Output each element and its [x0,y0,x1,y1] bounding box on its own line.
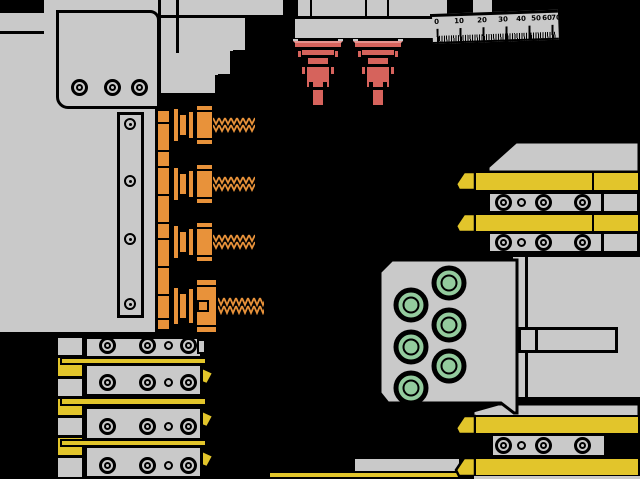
bolt-head-line [197,285,216,287]
collet-ear [394,50,399,58]
coolant-manifold [378,258,519,418]
dowel-hole [164,378,173,387]
cap-screw [180,457,197,474]
rail-screw [124,298,136,310]
cap-screw [574,437,591,454]
cutting-insert [454,170,476,192]
bolt-head-line [197,325,216,327]
collet-side-tab [330,66,335,75]
screw-socket [76,84,83,91]
cap-screw [104,79,121,96]
tool-bar [474,457,640,477]
rail-divider [157,222,170,224]
shim-sliver [60,397,207,406]
ruler-label: 10 [454,17,464,25]
band-seam [387,0,389,16]
collet [292,38,344,108]
ruler-label: 20 [477,16,487,24]
cap-screw [71,79,88,96]
bolt-thread-icon [213,234,255,250]
collet-shaft [311,88,325,107]
dowel-hole [517,441,526,450]
bar-seam [592,213,594,233]
rail-screw [124,175,136,187]
rail-screw [124,118,136,130]
cutting-insert [200,409,216,429]
scale-ruler: 0 10 20 30 40 50 60 70 [432,10,559,44]
cap-screw [180,337,197,354]
rail-divider [157,194,170,196]
bolt-head-line [197,169,212,171]
cap-screw [180,418,197,435]
ruler-label: 70 [551,14,561,22]
clamp-rail [155,108,172,332]
body-edge [233,50,248,53]
rail-divider [157,150,170,152]
slide-block [513,254,640,397]
cap-screw [131,79,148,96]
cap-screw [99,374,116,391]
cap-screw [139,374,156,391]
plate-seam [601,231,604,254]
cap-screw [139,337,156,354]
body-seam-line [158,15,286,18]
guide-rail [117,112,144,318]
machine-body-left-column [0,10,47,335]
cutting-insert [454,456,476,478]
cutting-insert [454,414,476,436]
cutting-insert [200,449,216,469]
stack-spacer [56,416,84,437]
band-seam [310,0,312,16]
cap-screw [495,234,512,251]
rail-divider [157,122,170,124]
block-slot [518,327,618,353]
dowel-hole [517,198,526,207]
collet-side-tab [361,66,366,75]
body-edge [218,74,233,77]
cap-screw [535,194,552,211]
body-edge [215,75,218,95]
cap-screw [574,234,591,251]
cap-screw [139,457,156,474]
bolt-head-line [197,255,212,257]
dowel-hole [164,341,173,350]
holder-step [197,339,206,354]
stack-spacer [56,377,84,398]
top-slide-band [298,0,430,16]
rail-divider [157,166,170,168]
collet [352,38,404,108]
bolt-thread-icon [218,297,264,315]
bolt-head-line [197,138,212,140]
cap-screw [535,437,552,454]
body-bottom-edge [0,332,158,335]
rail-screw [124,233,136,245]
ruler-ticks [436,25,555,44]
rail-divider [157,266,170,268]
collet-side-tab [301,66,306,75]
collet-ear [297,50,302,58]
tool-bar [474,213,640,233]
collet-shaft [371,88,385,107]
spindle-band [295,16,435,40]
cap-screw [495,437,512,454]
bolt-thread-icon [213,117,255,133]
cap-screw [180,374,197,391]
bolt-head-line [197,197,212,199]
collet-ear [334,50,339,58]
ruler-label: 30 [498,15,508,23]
stack-spacer [56,336,84,357]
bar-seam [592,171,594,192]
cutting-insert [200,366,216,386]
ruler-label: 0 [434,18,439,26]
rail-divider [157,294,170,296]
rail-divider [157,318,170,320]
bolt-head-line [197,227,212,229]
screw-socket [109,84,116,91]
cap-screw [574,194,591,211]
machine-tool-diagram: 0 10 20 30 40 50 60 70 [0,0,640,479]
plate-seam [601,191,604,214]
tool-bar-sliver [268,471,460,479]
ruler-label: 50 [531,14,541,22]
body-edge [158,93,218,96]
cap-screw [99,337,116,354]
rail-divider [157,238,170,240]
tool-bar [474,415,640,435]
turret-body-chamfered [487,140,640,173]
dowel-hole [164,461,173,470]
cap-screw [99,418,116,435]
ruler-label: 40 [516,15,526,23]
bolt-head-line [197,110,212,112]
bolt-thread-icon [213,176,255,192]
stack-spacer [56,456,84,479]
dowel-hole [164,422,173,431]
top-block [430,0,447,14]
collet-side-tab [390,66,395,75]
cap-screw [99,457,116,474]
body-seam-line [0,31,44,34]
dowel-hole [517,238,526,247]
screw-socket [136,84,143,91]
cap-screw [139,418,156,435]
cap-screw [535,234,552,251]
slot-divider [535,329,538,351]
cutting-insert [454,212,476,234]
body-edge [245,16,248,53]
collet-ear [357,50,362,58]
body-seam-vertical [176,0,179,53]
band-seam [365,0,367,16]
bolt-head-slot [197,300,209,312]
cap-screw [495,194,512,211]
tool-bar [474,171,640,192]
